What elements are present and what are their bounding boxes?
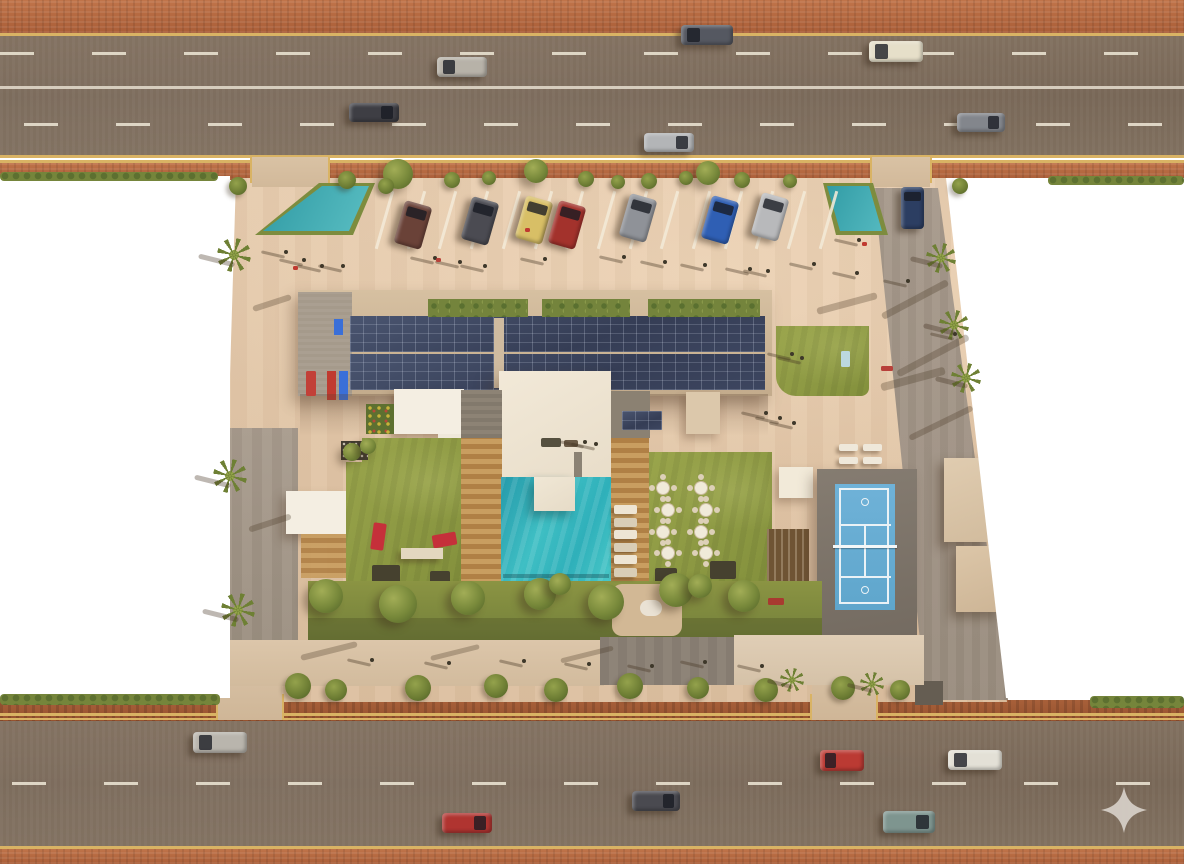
- moving-car: [681, 25, 733, 45]
- bush: [378, 178, 394, 194]
- deck-lounger: [614, 543, 637, 552]
- bush: [325, 679, 347, 701]
- bush: [229, 177, 247, 195]
- bush: [544, 678, 568, 702]
- bush: [734, 172, 750, 188]
- person: [906, 279, 910, 283]
- bush: [641, 173, 657, 189]
- palm-tree: [213, 459, 247, 493]
- dining-table: [700, 504, 712, 516]
- prop: [881, 366, 893, 371]
- solar-panel-small: [622, 411, 662, 430]
- hedge-west-bottom: [0, 694, 220, 705]
- bush: [285, 673, 311, 699]
- moving-car: [948, 750, 1002, 770]
- car-windshield: [472, 202, 494, 217]
- person: [703, 660, 707, 664]
- person: [650, 664, 654, 668]
- flower-bed: [366, 404, 394, 434]
- west-wing-roof: [286, 491, 348, 534]
- roof-block-west: [394, 389, 464, 434]
- person: [800, 356, 804, 360]
- driveway-bottom-right-curb: [810, 694, 812, 720]
- car-windshield: [916, 815, 928, 830]
- car-windshield: [712, 201, 734, 216]
- person: [483, 264, 487, 268]
- plaza-lounger: [839, 457, 858, 464]
- palm-tree: [221, 593, 255, 627]
- roof-block-pergola-north: [779, 467, 813, 498]
- moving-car: [644, 133, 694, 152]
- palm-tree: [926, 243, 956, 273]
- planter-4: [710, 561, 736, 579]
- courtyard-lawn-west: [346, 438, 466, 585]
- deck-lounger: [614, 530, 637, 539]
- palm-tree: [780, 668, 804, 692]
- bush: [783, 174, 797, 188]
- prop: [436, 258, 441, 262]
- pool-deck-stairs-west: [461, 438, 502, 584]
- person: [543, 257, 547, 261]
- moving-car: [957, 113, 1005, 132]
- poolside-furniture-a: [541, 438, 561, 447]
- central-tower-pool-tab: [534, 477, 575, 511]
- driveway-top-left-curb2: [328, 157, 330, 183]
- tree: [451, 581, 485, 615]
- top-road-curb-line-a: [0, 155, 1184, 158]
- bottom-road-curb-line-b: [0, 718, 1184, 721]
- roof-garden-3: [648, 299, 760, 317]
- person: [587, 662, 591, 666]
- driveway-top-right: [872, 157, 930, 187]
- plaza-lounger: [839, 444, 858, 451]
- person: [341, 264, 345, 268]
- palm-tree: [951, 363, 981, 393]
- hedge-west-top: [0, 172, 218, 181]
- driveway-top-left: [252, 157, 328, 187]
- bush: [617, 673, 643, 699]
- sand-path-stone: [640, 600, 662, 616]
- lawn-bench: [401, 548, 443, 559]
- roof-garden-1: [428, 299, 528, 317]
- tennis-court: [835, 484, 895, 610]
- tree: [524, 159, 548, 183]
- dining-table: [662, 547, 674, 559]
- bush: [687, 677, 709, 699]
- pergola-deck: [767, 529, 809, 585]
- prop: [841, 351, 850, 367]
- car-windshield: [825, 753, 836, 767]
- bush: [484, 674, 508, 698]
- roof-garden-2: [542, 299, 630, 317]
- person: [857, 238, 861, 242]
- tree: [728, 580, 760, 612]
- west-wing-deck-stairs: [301, 534, 348, 578]
- driveway-bottom-left-curb2: [282, 694, 284, 720]
- prop: [768, 598, 784, 605]
- deck-lounger: [614, 568, 637, 577]
- plaza-lounger: [863, 444, 882, 451]
- driveway-top-right-curb2: [930, 157, 932, 183]
- bush: [482, 171, 496, 185]
- car-windshield: [630, 199, 652, 214]
- prop: [293, 266, 298, 270]
- car-windshield: [676, 136, 688, 149]
- aerial-site-rendering: [0, 0, 1184, 864]
- court-center-line: [864, 524, 866, 578]
- bottom-road-curb-line-a: [0, 713, 1184, 716]
- prop: [862, 242, 867, 246]
- car-windshield: [954, 753, 967, 767]
- entering-car: [901, 187, 924, 229]
- tree: [360, 438, 376, 454]
- moving-car: [193, 732, 247, 753]
- sparkle-watermark-icon: [1100, 786, 1148, 834]
- dining-table: [662, 504, 674, 516]
- person: [778, 416, 782, 420]
- bush: [890, 680, 910, 700]
- car-windshield: [381, 106, 393, 119]
- person: [703, 263, 707, 267]
- dining-table: [695, 526, 707, 538]
- person: [790, 352, 794, 356]
- car-windshield: [199, 735, 212, 749]
- person: [760, 664, 764, 668]
- person: [663, 260, 667, 264]
- plaza-lounger: [863, 457, 882, 464]
- person: [764, 411, 768, 415]
- tree: [379, 585, 417, 623]
- top-road-lane-dash-1: [0, 52, 1184, 55]
- car-windshield: [687, 28, 699, 42]
- bottom-road-lane-dash: [0, 782, 1184, 785]
- dining-table: [657, 526, 669, 538]
- person: [284, 250, 288, 254]
- person: [594, 442, 598, 446]
- bush: [444, 172, 460, 188]
- palm-tree: [860, 672, 884, 696]
- person: [953, 332, 957, 336]
- person: [583, 440, 587, 444]
- tree: [549, 573, 571, 595]
- court-mark-bottom: [861, 586, 869, 594]
- car-windshield: [474, 816, 486, 830]
- tree: [688, 574, 712, 598]
- terrace-mat-blue: [334, 319, 343, 335]
- dining-table: [695, 482, 707, 494]
- bush: [952, 178, 968, 194]
- top-road-far-sidewalk: [0, 0, 1184, 33]
- car-windshield: [762, 198, 784, 213]
- hedge-east-top: [1048, 176, 1184, 185]
- central-tower-roof: [499, 371, 611, 478]
- prop: [525, 228, 530, 232]
- person: [447, 661, 451, 665]
- moving-car: [883, 811, 935, 833]
- deck-lounger: [614, 505, 637, 514]
- moving-car: [442, 813, 492, 833]
- pool-deck-upper: [461, 390, 502, 438]
- dining-table: [657, 482, 669, 494]
- blank-area-west: [0, 176, 230, 698]
- person: [792, 421, 796, 425]
- hedge-east-bottom: [1090, 696, 1184, 708]
- car-windshield: [443, 60, 455, 74]
- moving-car: [437, 57, 487, 77]
- bush: [405, 675, 431, 701]
- roof-block-east: [686, 392, 720, 434]
- person: [370, 658, 374, 662]
- dining-table: [700, 547, 712, 559]
- tree: [309, 579, 343, 613]
- tree: [343, 443, 361, 461]
- bush: [578, 171, 594, 187]
- court-net: [833, 545, 897, 548]
- bush: [611, 175, 625, 189]
- person: [458, 260, 462, 264]
- car-windshield: [988, 116, 1000, 129]
- driveway-top-right-curb: [870, 157, 872, 183]
- car-windshield: [559, 206, 581, 221]
- person: [622, 255, 626, 259]
- person: [855, 271, 859, 275]
- car-windshield: [875, 44, 888, 58]
- moving-car: [820, 750, 864, 771]
- palm-tree: [217, 238, 251, 272]
- bush: [831, 676, 855, 700]
- person: [302, 258, 306, 262]
- bush: [338, 171, 356, 189]
- moving-car: [349, 103, 399, 122]
- car-windshield: [405, 206, 427, 221]
- solar-panel-row-north: [350, 316, 765, 352]
- top-road-lane-dash-2: [0, 123, 1184, 126]
- deck-lounger: [614, 555, 637, 564]
- person: [812, 262, 816, 266]
- bush: [679, 171, 693, 185]
- person: [766, 269, 770, 273]
- car-windshield: [526, 201, 548, 216]
- car-windshield: [663, 794, 675, 808]
- deck-lounger: [614, 518, 637, 527]
- court-mark-top: [861, 498, 869, 506]
- moving-car: [632, 791, 680, 811]
- tree: [696, 161, 720, 185]
- prop: [306, 371, 316, 396]
- driveway-top-left-curb: [250, 157, 252, 183]
- driveway-bottom-right-curb2: [876, 694, 878, 720]
- car-windshield: [904, 192, 921, 201]
- moving-car: [869, 41, 923, 62]
- top-road-center-line: [0, 86, 1184, 89]
- bottom-road-far-sidewalk: [0, 849, 1184, 864]
- tree: [588, 584, 624, 620]
- person: [522, 659, 526, 663]
